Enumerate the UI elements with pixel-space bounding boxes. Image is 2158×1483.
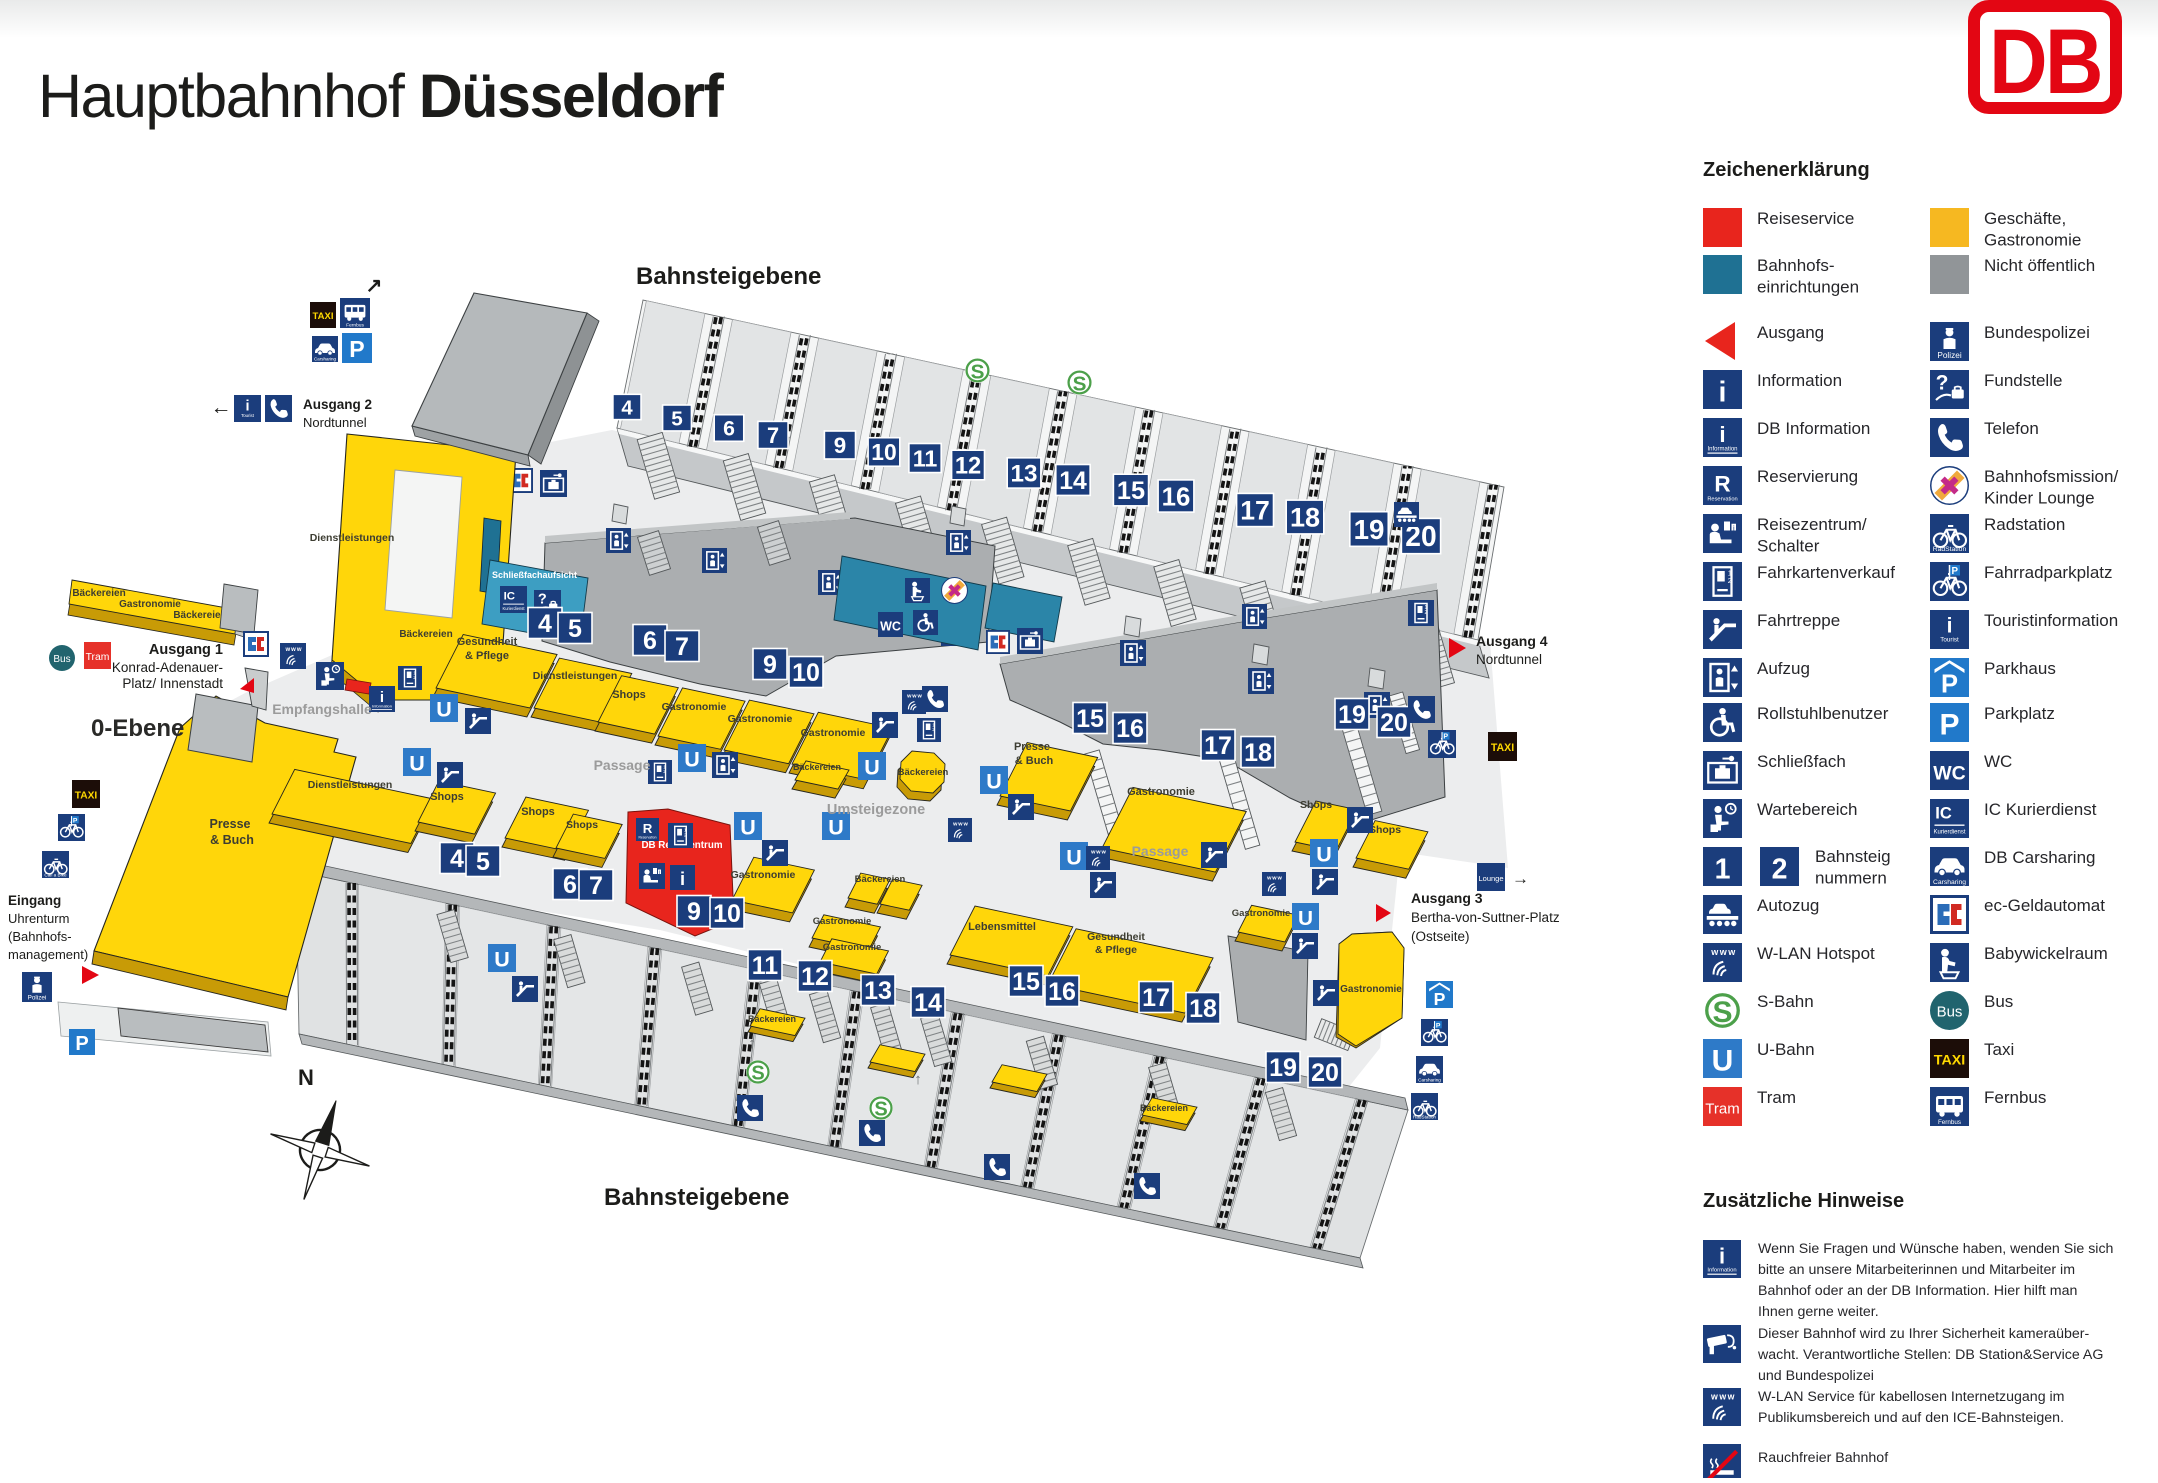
svg-text:Ausgang: Ausgang <box>1757 323 1824 342</box>
svg-text:bitte an unsere Mitarbeiterinn: bitte an unsere Mitarbeiterinnen und Mit… <box>1758 1262 2075 1278</box>
svg-text:Umsteigezone: Umsteigezone <box>827 802 925 818</box>
svg-text:Ausgang 1: Ausgang 1 <box>149 642 223 658</box>
svg-text:Parkplatz: Parkplatz <box>1984 704 2055 723</box>
svg-text:Dienstleistungen: Dienstleistungen <box>308 779 393 791</box>
svg-text:14: 14 <box>914 989 942 1017</box>
svg-text:IC Kurierdienst: IC Kurierdienst <box>1984 800 2097 819</box>
svg-text:11: 11 <box>752 952 779 980</box>
svg-text:Gastronomie: Gastronomie <box>801 727 866 739</box>
svg-text:Konrad-Adenauer-: Konrad-Adenauer- <box>112 660 223 675</box>
svg-text:↑: ↑ <box>748 1035 756 1052</box>
svg-text:19: 19 <box>1338 701 1366 729</box>
svg-text:Bäckereien: Bäckereien <box>1140 1103 1188 1113</box>
svg-text:Gastronomie: Gastronomie <box>813 916 872 927</box>
svg-text:15: 15 <box>1012 968 1040 996</box>
svg-text:Gastronomie: Gastronomie <box>1127 786 1195 798</box>
svg-text:und Bundespolizei: und Bundespolizei <box>1758 1368 1874 1384</box>
svg-text:Information: Information <box>1757 371 1842 390</box>
svg-text:Bahnhof oder an der DB Informa: Bahnhof oder an der DB Information. Hier… <box>1758 1283 2077 1299</box>
svg-text:Bahnhofsmission/: Bahnhofsmission/ <box>1984 467 2118 486</box>
svg-text:0-Ebene: 0-Ebene <box>91 715 184 742</box>
svg-text:Bundespolizei: Bundespolizei <box>1984 323 2090 342</box>
svg-text:management): management) <box>8 947 88 962</box>
svg-text:5: 5 <box>476 848 490 876</box>
svg-text:Bus: Bus <box>1984 992 2013 1011</box>
svg-text:10: 10 <box>871 439 896 465</box>
svg-text:Autozug: Autozug <box>1757 896 1819 915</box>
svg-text:& Pflege: & Pflege <box>1095 944 1137 956</box>
svg-text:Shops: Shops <box>1369 824 1401 836</box>
svg-text:Ausgang 2: Ausgang 2 <box>303 397 372 412</box>
svg-text:Shops: Shops <box>521 806 555 818</box>
svg-text:20: 20 <box>1380 709 1408 737</box>
svg-text:Gastronomie: Gastronomie <box>1232 908 1291 919</box>
svg-text:17: 17 <box>1142 984 1170 1012</box>
svg-text:Dieser Bahnhof wird zu Ihrer S: Dieser Bahnhof wird zu Ihrer Sicherheit … <box>1758 1326 2089 1342</box>
svg-text:Shops: Shops <box>430 791 464 803</box>
svg-text:↑: ↑ <box>914 1071 922 1088</box>
svg-text:18: 18 <box>1189 995 1217 1023</box>
svg-text:Gastronomie: Gastronomie <box>119 599 181 610</box>
svg-text:Bahnsteig: Bahnsteig <box>1815 847 1891 866</box>
svg-text:(Ostseite): (Ostseite) <box>1411 929 1470 944</box>
svg-text:9: 9 <box>687 898 701 926</box>
svg-text:Gesundheit: Gesundheit <box>1087 931 1145 943</box>
svg-text:Gesundheit: Gesundheit <box>457 636 518 648</box>
svg-text:Fahrradparkplatz: Fahrradparkplatz <box>1984 563 2113 582</box>
svg-text:& Pflege: & Pflege <box>465 650 509 662</box>
svg-text:Gastronomie: Gastronomie <box>662 701 727 713</box>
svg-text:Ausgang 3: Ausgang 3 <box>1411 890 1483 906</box>
svg-text:6: 6 <box>643 627 657 655</box>
svg-text:10: 10 <box>792 659 820 687</box>
svg-text:Lebensmittel: Lebensmittel <box>968 921 1036 933</box>
svg-text:7: 7 <box>589 872 603 900</box>
svg-text:(Bahnhofs-: (Bahnhofs- <box>8 929 72 944</box>
svg-text:Kinder Lounge: Kinder Lounge <box>1984 489 2095 508</box>
svg-text:15: 15 <box>1076 705 1104 733</box>
svg-text:5: 5 <box>671 408 683 431</box>
svg-text:& Buch: & Buch <box>1015 755 1054 767</box>
svg-text:Passage: Passage <box>1132 843 1189 859</box>
svg-text:Bäckereien: Bäckereien <box>793 762 841 772</box>
svg-text:Bahnsteigebene: Bahnsteigebene <box>604 1184 789 1211</box>
svg-text:wacht. Verantwortliche Stellen: wacht. Verantwortliche Stellen: DB Stati… <box>1757 1347 2103 1363</box>
svg-text:Dienstleistungen: Dienstleistungen <box>310 532 395 544</box>
svg-text:Rollstuhlbenutzer: Rollstuhlbenutzer <box>1757 704 1889 723</box>
svg-text:↗: ↗ <box>366 275 383 297</box>
svg-text:Presse: Presse <box>209 817 250 831</box>
svg-text:nummern: nummern <box>1815 869 1887 888</box>
svg-text:14: 14 <box>1059 468 1087 495</box>
svg-text:WC: WC <box>1984 752 2012 771</box>
svg-text:DB Information: DB Information <box>1757 419 1870 438</box>
svg-text:Fundstelle: Fundstelle <box>1984 371 2062 390</box>
svg-text:Bäckereien: Bäckereien <box>399 629 452 640</box>
svg-text:Nordtunnel: Nordtunnel <box>303 415 367 430</box>
svg-text:Touristinformation: Touristinformation <box>1984 611 2118 630</box>
svg-text:Babywickelraum: Babywickelraum <box>1984 944 2108 963</box>
svg-text:Shops: Shops <box>1300 799 1332 811</box>
svg-text:6: 6 <box>563 871 577 899</box>
svg-text:Zusätzliche Hinweise: Zusätzliche Hinweise <box>1703 1190 1904 1212</box>
svg-text:Bäckereien: Bäckereien <box>173 610 226 621</box>
svg-text:13: 13 <box>1011 461 1038 488</box>
svg-text:S-Bahn: S-Bahn <box>1757 992 1814 1011</box>
svg-text:Gastronomie: Gastronomie <box>1984 231 2081 250</box>
svg-text:4: 4 <box>538 610 552 638</box>
svg-text:U-Bahn: U-Bahn <box>1757 1040 1815 1059</box>
svg-text:16: 16 <box>1162 483 1191 511</box>
svg-text:DB: DB <box>1989 11 2101 113</box>
svg-text:17: 17 <box>1240 496 1270 526</box>
svg-text:10: 10 <box>713 900 741 928</box>
svg-text:Taxi: Taxi <box>1984 1040 2014 1059</box>
svg-text:Ihnen gerne weiter.: Ihnen gerne weiter. <box>1758 1304 1879 1320</box>
svg-text:Geschäfte,: Geschäfte, <box>1984 209 2066 228</box>
svg-text:13: 13 <box>864 977 892 1005</box>
svg-text:Telefon: Telefon <box>1984 419 2039 438</box>
svg-text:Reservierung: Reservierung <box>1757 467 1858 486</box>
svg-text:Reisezentrum/: Reisezentrum/ <box>1757 515 1867 534</box>
svg-text:←: ← <box>211 396 232 419</box>
svg-text:9: 9 <box>834 433 846 458</box>
svg-text:Gastronomie: Gastronomie <box>823 942 882 953</box>
svg-text:Wenn Sie Fragen und Wünsche ha: Wenn Sie Fragen und Wünsche haben, wende… <box>1758 1241 2113 1257</box>
svg-text:Shops: Shops <box>566 819 598 831</box>
svg-text:Zeichenerklärung: Zeichenerklärung <box>1703 159 1870 181</box>
svg-text:Shops: Shops <box>612 689 646 701</box>
svg-text:19: 19 <box>1269 1054 1297 1082</box>
svg-text:Radstation: Radstation <box>1984 515 2065 534</box>
svg-text:Presse: Presse <box>1014 741 1050 753</box>
svg-text:4: 4 <box>450 845 464 873</box>
svg-text:Bäckereien: Bäckereien <box>855 874 906 885</box>
svg-text:W-LAN Hotspot: W-LAN Hotspot <box>1757 944 1875 963</box>
svg-text:18: 18 <box>1290 503 1320 533</box>
svg-text:Parkhaus: Parkhaus <box>1984 659 2056 678</box>
svg-text:Tram: Tram <box>1757 1088 1796 1107</box>
svg-text:Bäckereien: Bäckereien <box>898 767 949 778</box>
svg-text:Bäckereien: Bäckereien <box>72 588 125 599</box>
svg-text:Platz/ Innenstadt: Platz/ Innenstadt <box>122 676 223 691</box>
svg-text:Empfangshalle: Empfangshalle <box>272 701 372 717</box>
svg-text:16: 16 <box>1116 715 1144 743</box>
svg-text:7: 7 <box>767 423 779 448</box>
svg-text:Uhrenturm: Uhrenturm <box>8 911 69 926</box>
svg-text:Hauptbahnhof Düsseldorf: Hauptbahnhof Düsseldorf <box>38 62 725 130</box>
svg-text:Fernbus: Fernbus <box>1984 1088 2046 1107</box>
svg-text:Passage: Passage <box>594 757 651 773</box>
svg-text:Dienstleistungen: Dienstleistungen <box>533 670 618 682</box>
svg-text:W-LAN Service für kabellosen I: W-LAN Service für kabellosen Internetzug… <box>1758 1389 2065 1405</box>
svg-text:Bahnsteigebene: Bahnsteigebene <box>636 263 821 290</box>
svg-text:Schalter: Schalter <box>1757 537 1820 556</box>
svg-text:Nicht öffentlich: Nicht öffentlich <box>1984 256 2095 275</box>
svg-text:N: N <box>298 1065 314 1090</box>
svg-text:4: 4 <box>621 397 633 419</box>
svg-text:Rauchfreier Bahnhof: Rauchfreier Bahnhof <box>1758 1450 1888 1466</box>
svg-text:18: 18 <box>1244 739 1272 767</box>
svg-text:& Buch: & Buch <box>210 833 254 847</box>
svg-text:6: 6 <box>723 417 735 441</box>
svg-text:Schließfachaufsicht: Schließfachaufsicht <box>492 570 577 580</box>
svg-text:Eingang: Eingang <box>8 893 61 908</box>
svg-text:12: 12 <box>801 963 829 991</box>
svg-text:Aufzug: Aufzug <box>1757 659 1810 678</box>
svg-text:→: → <box>1512 869 1529 888</box>
svg-text:DB Carsharing: DB Carsharing <box>1984 848 2096 867</box>
svg-text:15: 15 <box>1117 477 1145 505</box>
svg-text:Bäckereien: Bäckereien <box>748 1014 796 1024</box>
svg-text:Fahrkartenverkauf: Fahrkartenverkauf <box>1757 563 1895 582</box>
svg-text:16: 16 <box>1048 978 1076 1006</box>
svg-text:11: 11 <box>913 445 938 471</box>
svg-text:Bahnhofs-: Bahnhofs- <box>1757 256 1835 275</box>
svg-text:Bertha-von-Suttner-Platz: Bertha-von-Suttner-Platz <box>1411 910 1560 925</box>
svg-text:Gastronomie: Gastronomie <box>728 713 793 725</box>
svg-text:12: 12 <box>955 454 981 480</box>
svg-text:17: 17 <box>1204 732 1232 760</box>
svg-text:Fahrtreppe: Fahrtreppe <box>1757 611 1840 630</box>
svg-text:19: 19 <box>1354 514 1385 545</box>
svg-text:Schließfach: Schließfach <box>1757 752 1846 771</box>
svg-text:9: 9 <box>763 651 777 679</box>
svg-text:Publikumsbereich und auf den I: Publikumsbereich und auf den ICE-Bahnste… <box>1758 1410 2064 1426</box>
svg-text:Reiseservice: Reiseservice <box>1757 209 1854 228</box>
svg-text:5: 5 <box>568 615 582 643</box>
svg-text:Nordtunnel: Nordtunnel <box>1476 652 1542 667</box>
svg-text:Ausgang 4: Ausgang 4 <box>1476 633 1548 649</box>
svg-text:Wartebereich: Wartebereich <box>1757 800 1857 819</box>
svg-text:20: 20 <box>1311 1059 1339 1087</box>
svg-text:einrichtungen: einrichtungen <box>1757 278 1859 297</box>
svg-text:ec-Geldautomat: ec-Geldautomat <box>1984 896 2105 915</box>
svg-text:Gastronomie: Gastronomie <box>731 869 796 881</box>
svg-text:7: 7 <box>675 633 689 661</box>
svg-text:Gastronomie: Gastronomie <box>1340 984 1402 995</box>
